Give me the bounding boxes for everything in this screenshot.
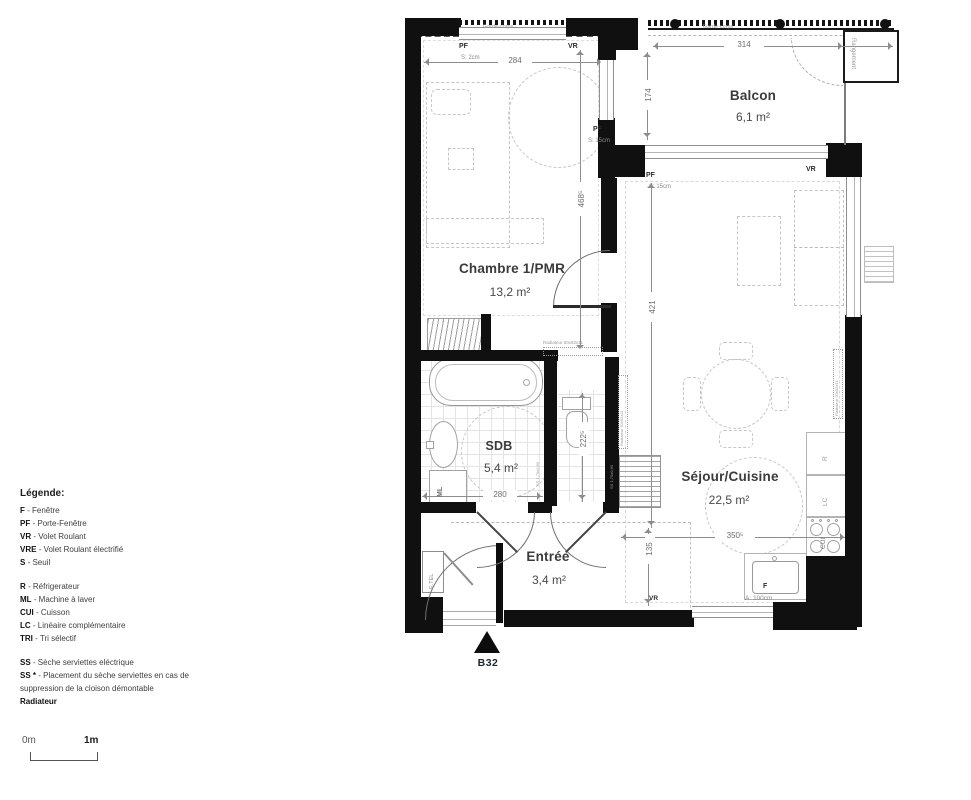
legend-text: - Porte-Fenêtre (32, 519, 86, 528)
wall (826, 143, 862, 177)
wall (405, 18, 461, 36)
room-name-sejour: Séjour/Cuisine (630, 469, 830, 484)
entree-dashed-boundary-v (690, 522, 691, 608)
legend-item: SS * - Placement du sèche serviettes en … (20, 669, 198, 695)
legend-text: - Volet Roulant électrifié (39, 545, 124, 554)
ss-tag-right: SS 1,70x0,60 (609, 465, 614, 489)
room-area-balcon: 6,1 m² (653, 110, 853, 124)
radiateur-tag-box (543, 347, 603, 356)
legend-text: - Sèche serviettes eléctrique (33, 658, 134, 667)
window-sejour-bottom (692, 606, 773, 618)
hob-burner (827, 540, 840, 553)
room-name-balcon: Balcon (653, 88, 853, 103)
legend-abbr: F (20, 506, 25, 515)
legend-footer: Radiateur (20, 695, 198, 708)
vr-label-sejour-top: VR (806, 166, 816, 173)
dim-arrow (419, 492, 427, 500)
sofa (794, 190, 844, 306)
hob-burner (810, 523, 823, 536)
dim-arrow (644, 525, 652, 533)
dim-arrow (643, 133, 651, 141)
ss-tag-left: SS 1,70x0,60 (535, 462, 540, 486)
wall (806, 556, 848, 604)
legend-abbr: PF (20, 519, 30, 528)
room-area-chambre: 13,2 m² (410, 285, 610, 299)
legend-text: - Machine à laver (34, 595, 95, 604)
legend-item: F - Fenêtre (20, 504, 198, 517)
room-name-chambre: Chambre 1/PMR (412, 261, 612, 276)
ml-label: ML (437, 487, 444, 497)
chair-right (771, 377, 789, 411)
legend: Légende: F - Fenêtre PF - Porte-Fenêtre … (20, 488, 198, 708)
seuil-label-chambre-balcony: S: 15cm (588, 138, 610, 144)
dim-arrow (421, 58, 429, 66)
wall (601, 303, 617, 352)
legend-text: - Placement du sèche serviettes en cas d… (20, 671, 189, 693)
dim-sdb-width: 280 (483, 490, 517, 500)
bench (426, 218, 544, 244)
dim-sejour-width: 350⁵ (715, 531, 755, 541)
hob-knob (819, 519, 822, 522)
bed-pillow (431, 89, 471, 115)
chair-top (719, 342, 753, 360)
kitchen-lc-label: LC (822, 498, 829, 506)
wall (504, 610, 694, 627)
vr-label-chambre-top: VR (568, 43, 578, 50)
window-chambre-balcony (599, 60, 614, 120)
dim-arrow (618, 533, 626, 541)
legend-item: TRI - Tri sélectif (20, 632, 198, 645)
radiateur-tag-right: Radiateur 50x92x11 (834, 380, 839, 416)
garde-corps-rail-balcony (648, 20, 894, 26)
seuil-label-chambre-top: S: 2cm (461, 55, 480, 61)
etel-label: E.TEL (429, 574, 435, 589)
legend-abbr: TRI (20, 634, 33, 643)
rail-post (775, 19, 785, 29)
kitchen-cui-label: CUI (820, 538, 827, 549)
room-area-sejour: 22,5 m² (629, 493, 829, 507)
chambre-door-leaf (553, 305, 611, 308)
dim-arrow (650, 42, 658, 50)
dining-table (701, 359, 771, 429)
legend-item: LC - Linéaire complémentaire (20, 619, 198, 632)
legend-text: - Seuil (28, 558, 51, 567)
room-name-sdb: SDB (399, 439, 599, 453)
legend-item: S - Seuil (20, 556, 198, 569)
legend-abbr: SS (20, 658, 31, 667)
legend-abbr: VR (20, 532, 31, 541)
floor-plan-canvas: 284 468⁵ 314 174 421 350⁵ 135 280 222⁵ C… (0, 0, 971, 800)
dim-arrow (840, 533, 848, 541)
wall (544, 359, 557, 506)
bedside-shape (448, 148, 474, 170)
window-sejour-balcony (645, 145, 828, 159)
wall (773, 602, 857, 630)
legend-abbr: R (20, 582, 26, 591)
scale-zero: 0m (22, 735, 36, 746)
legend-text: - Fenêtre (27, 506, 59, 515)
rail-post (670, 19, 680, 29)
dim-chambre-height: 468⁵ (577, 182, 587, 216)
pf-label-chambre-balcony: PF (593, 126, 602, 133)
legend-abbr: VRE (20, 545, 36, 554)
legend-title: Légende: (20, 488, 198, 499)
dim-arrow (578, 390, 586, 398)
radiator-exterior (864, 246, 894, 283)
wall (481, 314, 491, 352)
dim-chambre-width: 284 (498, 56, 532, 66)
sofa-divider (794, 247, 844, 248)
radiateur-tag-sejour: Radiateur 50x92x11 (619, 410, 624, 446)
wall (601, 178, 617, 253)
scale-one: 1m (84, 735, 98, 746)
pmr-circle-chambre (508, 67, 609, 168)
dim-sejour-height: 421 (648, 292, 658, 322)
scale-bar: 0m 1m (20, 735, 130, 770)
legend-abbr: CUI (20, 608, 34, 617)
hob-burner (827, 523, 840, 536)
wall (405, 18, 421, 626)
unit-code: B32 (460, 657, 516, 669)
room-area-sdb: 5,4 m² (401, 461, 601, 475)
legend-text: - Cuisson (36, 608, 70, 617)
dim-arrow (537, 492, 545, 500)
f-label-kitchen-window: F (763, 583, 767, 590)
window-sejour-right (846, 177, 861, 317)
chair-bottom (719, 430, 753, 448)
legend-gap (20, 645, 198, 656)
bathtub-inner (435, 364, 537, 401)
legend-abbr: LC (20, 621, 31, 630)
legend-item: R - Réfrigerateur (20, 580, 198, 593)
hob-knob (835, 519, 838, 522)
dim-arrow (888, 42, 896, 50)
rug (737, 216, 781, 286)
pf-label-chambre-top: PF (459, 43, 468, 50)
wall (418, 502, 476, 513)
legend-text: - Volet Roulant (33, 532, 85, 541)
wall (418, 350, 558, 361)
room-name-entree: Entrée (448, 549, 648, 564)
kitchen-sink-basin (752, 561, 799, 594)
garde-corps-label-balcon: Garde-corps (688, 24, 748, 30)
legend-item: ML - Machine à laver (20, 593, 198, 606)
scale-bracket (30, 752, 98, 761)
legend-abbr: ML (20, 595, 32, 604)
legend-item: SS - Sèche serviettes eléctrique (20, 656, 198, 669)
legend-abbr: SS * (20, 671, 36, 680)
legend-abbr: S (20, 558, 25, 567)
dim-balcon-width: 314 (724, 40, 764, 50)
hob-knob (811, 519, 814, 522)
dim-arrow (597, 58, 605, 66)
dim-arrow (578, 495, 586, 503)
toilet-tank (562, 397, 591, 410)
wall (614, 18, 638, 50)
kitchen-r-label: R (822, 456, 829, 461)
legend-item: PF - Porte-Fenêtre (20, 517, 198, 530)
vr-label-sejour-bottom: VR (649, 595, 658, 602)
legend-item: CUI - Cuisson (20, 606, 198, 619)
legend-gap (20, 569, 198, 580)
room-area-entree: 3,4 m² (449, 573, 649, 587)
bathtub-drain (523, 379, 530, 386)
rail-post (880, 19, 890, 29)
radiateur-tag-chambre: Radiateur 50x92x11 (543, 340, 583, 345)
legend-text: - Réfrigerateur (28, 582, 80, 591)
entrance-triangle (474, 631, 500, 653)
legend-item: VR - Volet Roulant (20, 530, 198, 543)
allege-label: A: 100cm (745, 595, 772, 602)
garde-corps-label-chambre: Garde-corps (468, 24, 528, 30)
dim-arrow (643, 49, 651, 57)
chair-left (683, 377, 701, 411)
kitchen-faucet (772, 556, 777, 561)
hob-knob (827, 519, 830, 522)
pf-label-sejour-balcony: PF (646, 172, 655, 179)
radiator-chambre (427, 318, 482, 351)
rangement-label: Rangement (850, 38, 856, 69)
legend-text: - Tri sélectif (35, 634, 76, 643)
legend-item: VRE - Volet Roulant électrifié (20, 543, 198, 556)
legend-text: - Linéaire complémentaire (33, 621, 126, 630)
seuil-label-sejour-balcony: S: 15cm (649, 184, 671, 190)
wall (615, 145, 645, 177)
